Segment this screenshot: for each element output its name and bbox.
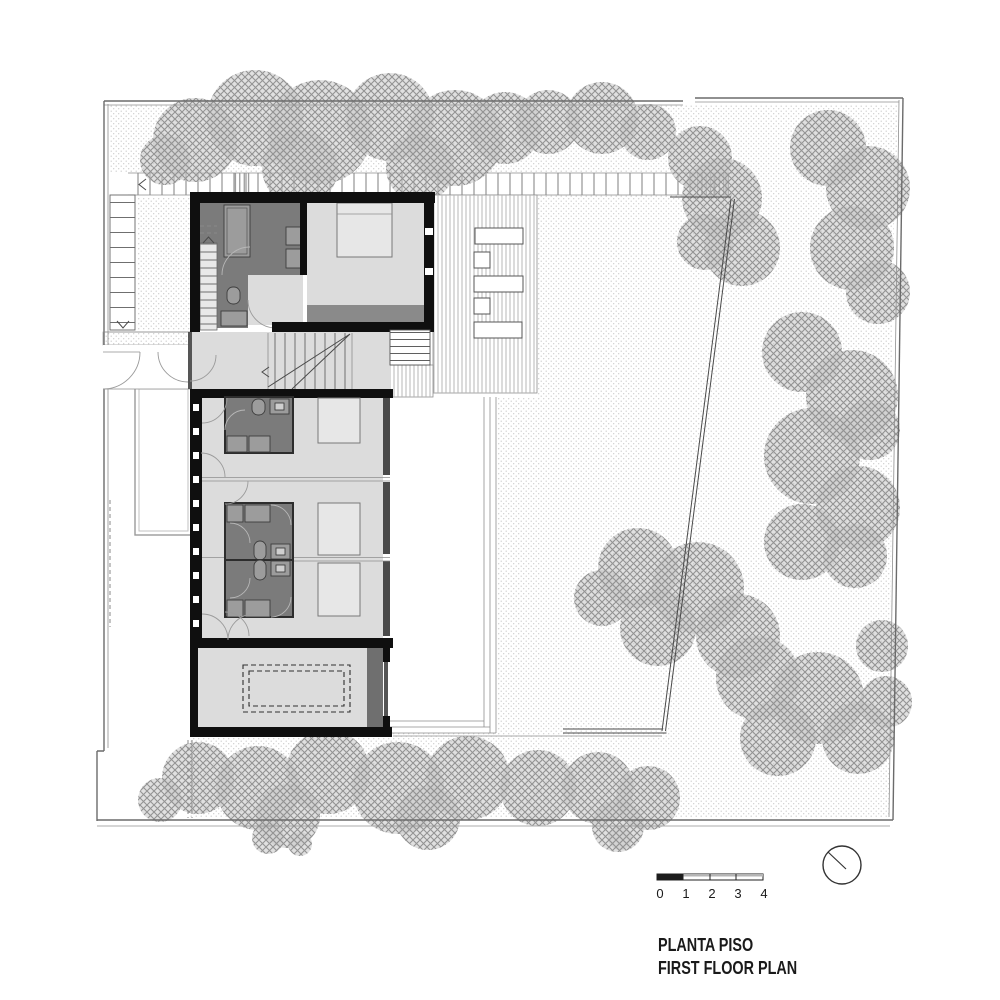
garage-block [190,648,392,737]
scale-label-3: 3 [728,886,748,901]
skylights [474,228,523,338]
master-bed [337,203,392,257]
patio-void [390,397,497,733]
bed-2 [318,503,360,555]
master-suite [190,192,435,343]
louver-facade-wall [190,398,202,648]
bed-1 [318,398,360,443]
bathroom-2 [225,503,293,560]
floor-plan-sheet: 0 1 2 3 4 PLANTA PISO FIRST FLOOR PLAN [0,0,1000,1000]
scale-bar [657,874,763,880]
scale-label-2: 2 [702,886,722,901]
north-indicator-icon [823,846,861,884]
bathroom-1 [225,397,293,453]
drawing-title-primary: PLANTA PISO [658,934,797,957]
drawing-title: PLANTA PISO FIRST FLOOR PLAN [658,934,797,980]
external-stair [110,195,135,330]
scale-label-0: 0 [650,886,670,901]
bed-3 [318,563,360,616]
bedroom-wing [190,389,393,648]
scale-label-1: 1 [676,886,696,901]
deck-steps [390,330,430,365]
site-plan-drawing [0,0,1000,1000]
bathroom-3 [225,560,293,617]
scale-label-4: 4 [754,886,774,901]
drawing-title-secondary: FIRST FLOOR PLAN [658,957,797,980]
